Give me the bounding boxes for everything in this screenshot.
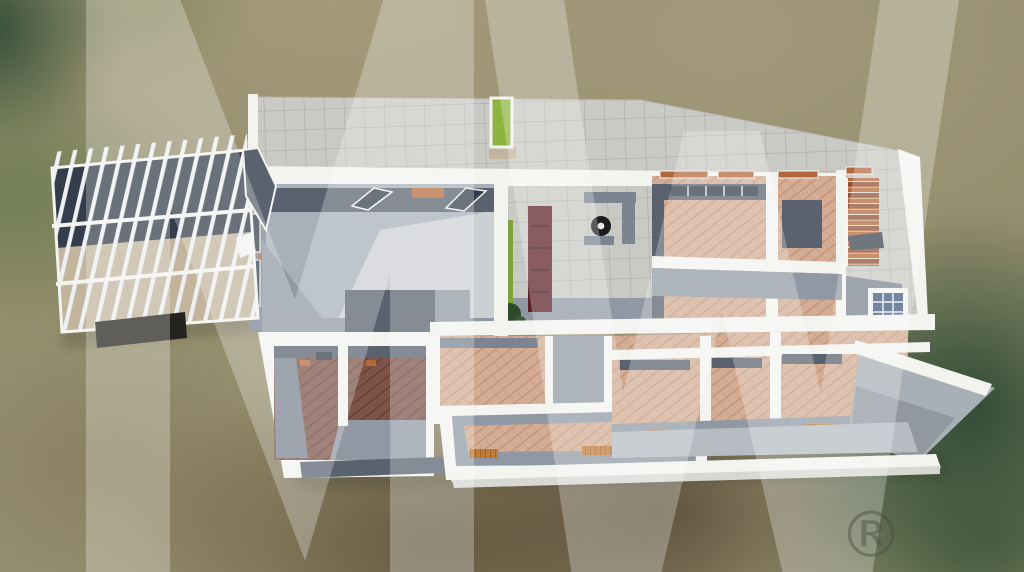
living-room-right-wall — [494, 184, 508, 336]
rendered-image: ® MW — [0, 0, 1024, 572]
floor-plan-scene: ® — [0, 0, 1024, 572]
closet-block — [782, 200, 822, 248]
radiator — [470, 449, 498, 458]
registered-trademark-symbol: ® — [839, 499, 903, 572]
